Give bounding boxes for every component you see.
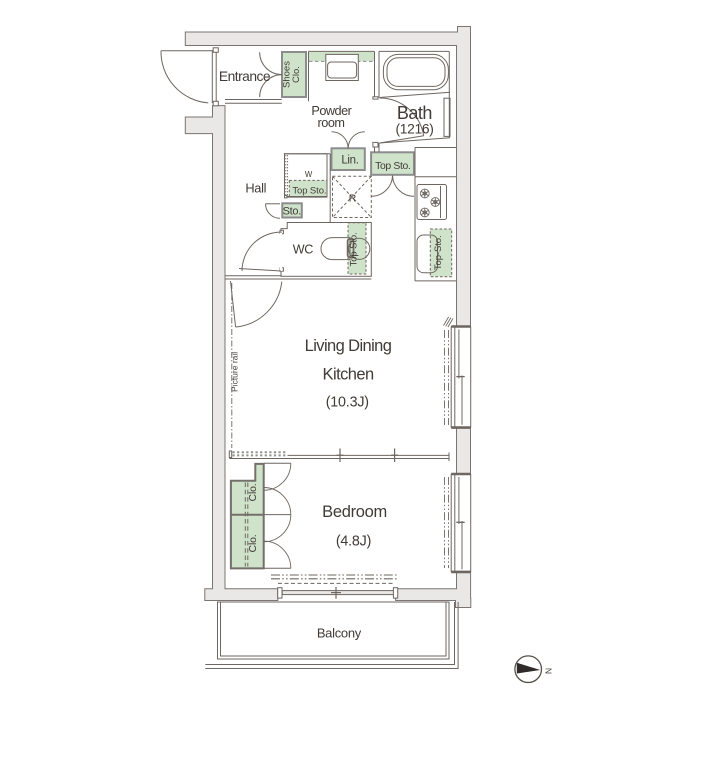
svg-text:(1216): (1216) (395, 121, 433, 136)
svg-text:Top Sto.: Top Sto. (349, 232, 360, 266)
svg-text:(10.3J): (10.3J) (326, 394, 369, 410)
svg-text:Hall: Hall (245, 180, 266, 195)
svg-text:Top-Sto.: Top-Sto. (433, 236, 444, 271)
svg-text:Bedroom: Bedroom (322, 503, 387, 521)
svg-text:Living Dining: Living Dining (305, 337, 392, 355)
svg-text:Sto.: Sto. (283, 205, 302, 217)
svg-text:Entrance: Entrance (219, 69, 271, 84)
svg-text:Clo.: Clo. (247, 484, 259, 502)
svg-text:WC: WC (293, 242, 313, 256)
svg-text:Kitchen: Kitchen (323, 366, 375, 384)
svg-text:(4.8J): (4.8J) (336, 533, 371, 549)
svg-text:N: N (544, 668, 554, 674)
svg-text:Clo.: Clo. (291, 66, 302, 83)
svg-text:Top Sto.: Top Sto. (375, 161, 410, 172)
svg-text:Clo.: Clo. (247, 535, 259, 553)
svg-text:R: R (349, 193, 357, 204)
svg-text:W: W (305, 170, 313, 179)
svg-text:Top Sto.: Top Sto. (292, 186, 326, 197)
svg-text:Balcony: Balcony (317, 626, 362, 641)
svg-text:Lin.: Lin. (341, 154, 358, 166)
svg-text:Picture rail: Picture rail (230, 352, 240, 392)
svg-text:room: room (318, 116, 345, 130)
svg-text:Bath: Bath (397, 103, 432, 123)
